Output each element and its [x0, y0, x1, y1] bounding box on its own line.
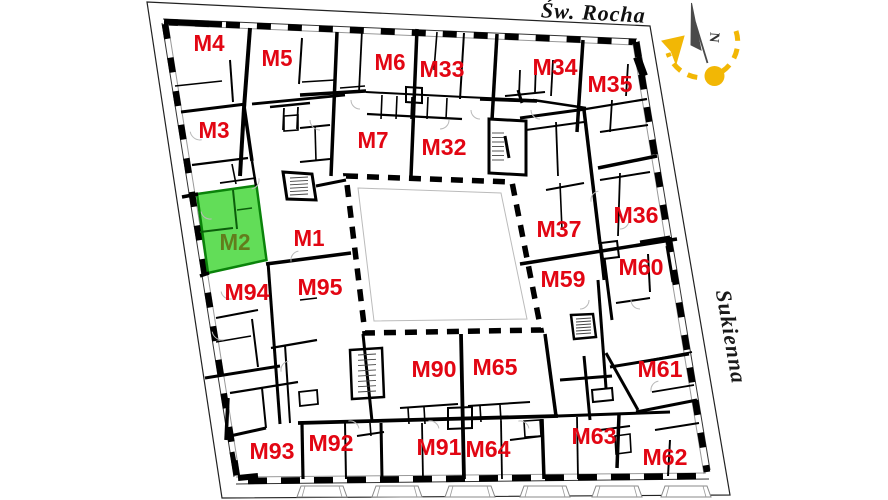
svg-text:M37: M37: [537, 216, 582, 242]
svg-text:M60: M60: [619, 254, 664, 280]
svg-text:M63: M63: [572, 423, 617, 449]
svg-text:M93: M93: [250, 438, 295, 464]
svg-text:M35: M35: [588, 71, 633, 97]
svg-text:M32: M32: [422, 134, 467, 160]
svg-text:M92: M92: [309, 430, 354, 456]
svg-text:M34: M34: [533, 54, 578, 80]
svg-text:M7: M7: [358, 127, 389, 153]
svg-text:M6: M6: [375, 49, 406, 75]
svg-text:M64: M64: [466, 436, 511, 462]
svg-text:M59: M59: [541, 266, 586, 292]
svg-text:M5: M5: [262, 45, 293, 71]
svg-text:M36: M36: [614, 202, 659, 228]
svg-text:M90: M90: [412, 356, 457, 382]
svg-text:M62: M62: [643, 444, 688, 470]
svg-text:M1: M1: [294, 225, 325, 251]
svg-text:M2: M2: [220, 229, 251, 255]
svg-text:M65: M65: [473, 354, 518, 380]
svg-text:M91: M91: [417, 434, 462, 460]
svg-text:M94: M94: [225, 279, 270, 305]
svg-text:N: N: [706, 32, 722, 43]
svg-text:M95: M95: [298, 274, 343, 300]
svg-text:M3: M3: [199, 117, 230, 143]
svg-text:M4: M4: [194, 30, 225, 56]
svg-text:M33: M33: [420, 56, 465, 82]
svg-text:M61: M61: [638, 356, 683, 382]
